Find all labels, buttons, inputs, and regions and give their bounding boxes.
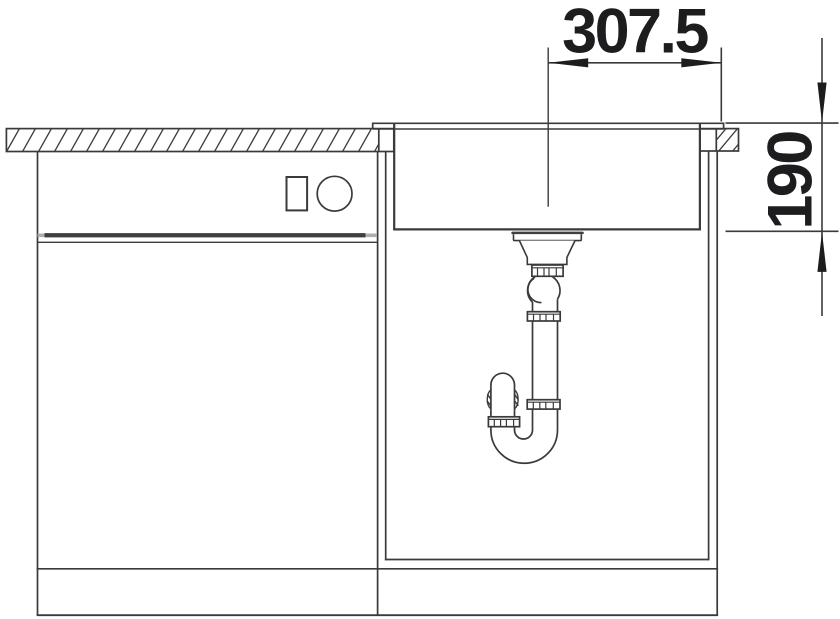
svg-text:190: 190 bbox=[756, 132, 826, 230]
svg-text:307.5: 307.5 bbox=[562, 0, 708, 67]
